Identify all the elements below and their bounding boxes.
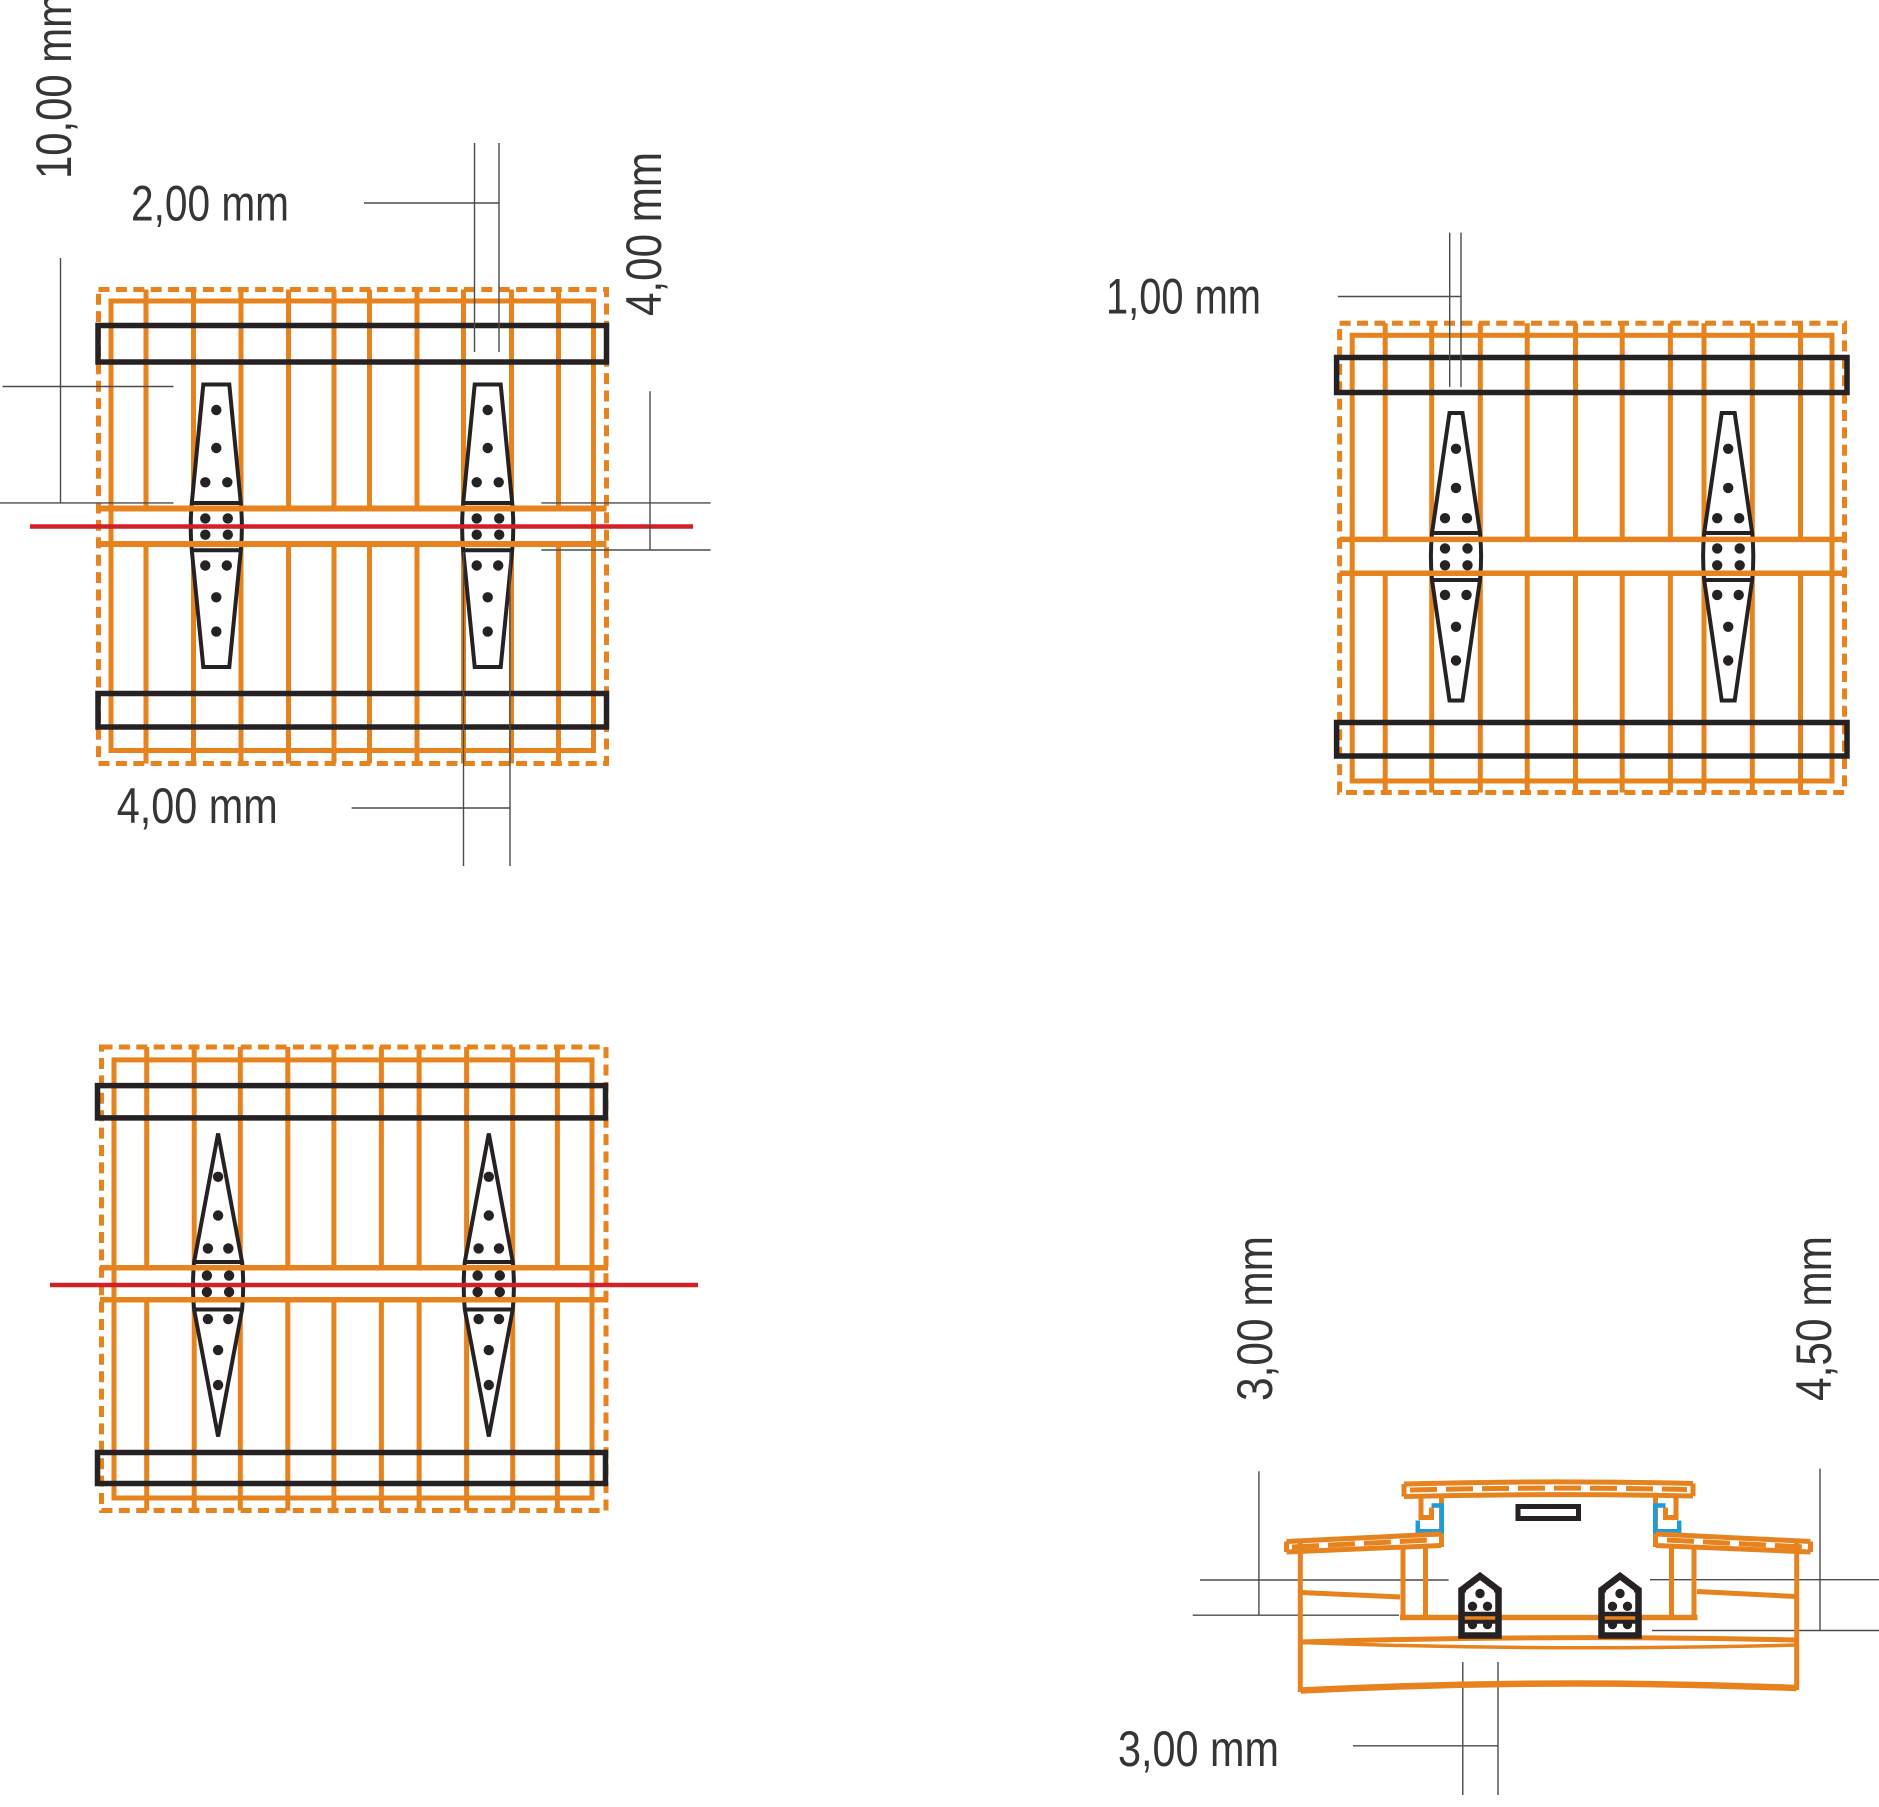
- svg-text:4,50 mm: 4,50 mm: [1786, 1236, 1842, 1401]
- svg-text:10,00 mm: 10,00 mm: [26, 0, 82, 179]
- svg-text:1,00 mm: 1,00 mm: [1106, 268, 1261, 324]
- svg-text:4,00 mm: 4,00 mm: [117, 778, 278, 834]
- svg-text:2,00 mm: 2,00 mm: [131, 176, 289, 232]
- svg-text:3,00 mm: 3,00 mm: [1118, 1721, 1279, 1777]
- svg-text:4,00 mm: 4,00 mm: [616, 152, 672, 316]
- svg-text:3,00 mm: 3,00 mm: [1227, 1236, 1283, 1401]
